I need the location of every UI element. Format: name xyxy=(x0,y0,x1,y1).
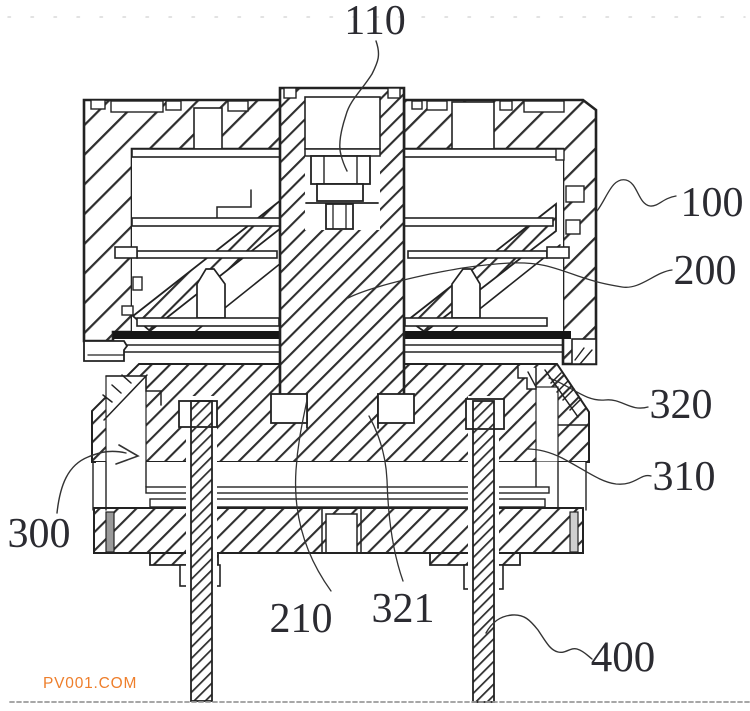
svg-text:320: 320 xyxy=(650,382,713,428)
svg-text:400: 400 xyxy=(591,634,656,681)
svg-text:321: 321 xyxy=(372,586,435,632)
svg-text:300: 300 xyxy=(8,511,71,557)
svg-text:310: 310 xyxy=(653,454,716,500)
svg-text:100: 100 xyxy=(681,180,744,226)
svg-text:PV001.COM: PV001.COM xyxy=(43,675,137,692)
svg-text:110: 110 xyxy=(344,0,405,44)
svg-text:200: 200 xyxy=(674,248,737,294)
svg-text:210: 210 xyxy=(270,596,333,642)
